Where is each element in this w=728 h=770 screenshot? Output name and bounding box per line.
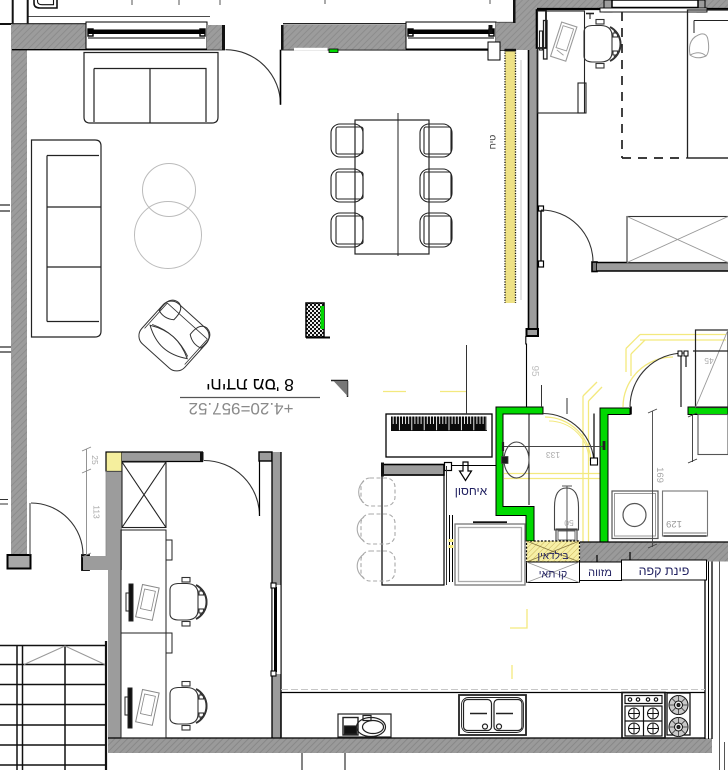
svg-text:יחידת מס' 8: יחידת מס' 8 bbox=[206, 375, 294, 395]
svg-text:פינת קפה: פינת קפה bbox=[639, 564, 690, 578]
svg-text:95: 95 bbox=[529, 365, 540, 377]
svg-text:45: 45 bbox=[704, 356, 714, 366]
svg-text:133: 133 bbox=[546, 450, 560, 460]
svg-text:+4.20=957.52: +4.20=957.52 bbox=[189, 399, 294, 418]
svg-text:טיח: טיח bbox=[488, 135, 499, 150]
svg-text:קו תאי: קו תאי bbox=[539, 569, 567, 581]
svg-text:בילדאין: בילדאין bbox=[538, 550, 569, 562]
svg-text:129: 129 bbox=[666, 518, 682, 529]
svg-text:איחסון: איחסון bbox=[455, 484, 488, 498]
svg-text:25: 25 bbox=[90, 455, 100, 465]
svg-text:מזווה: מזווה bbox=[588, 567, 612, 579]
svg-text:113: 113 bbox=[92, 505, 102, 519]
svg-text:50: 50 bbox=[564, 518, 574, 528]
svg-text:169: 169 bbox=[654, 467, 665, 483]
